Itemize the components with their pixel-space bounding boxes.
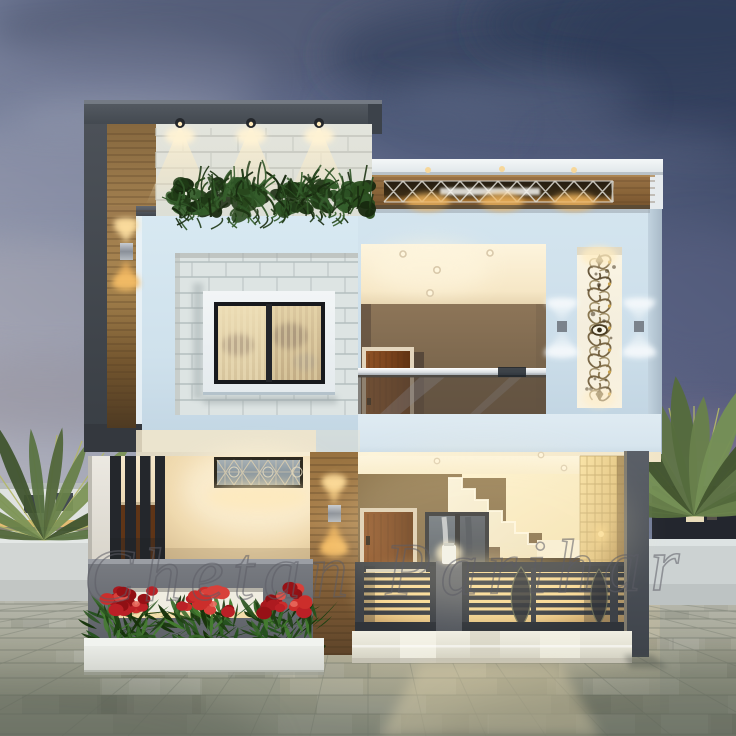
svg-text:Chetan Parihar: Chetan Parihar — [83, 522, 690, 619]
